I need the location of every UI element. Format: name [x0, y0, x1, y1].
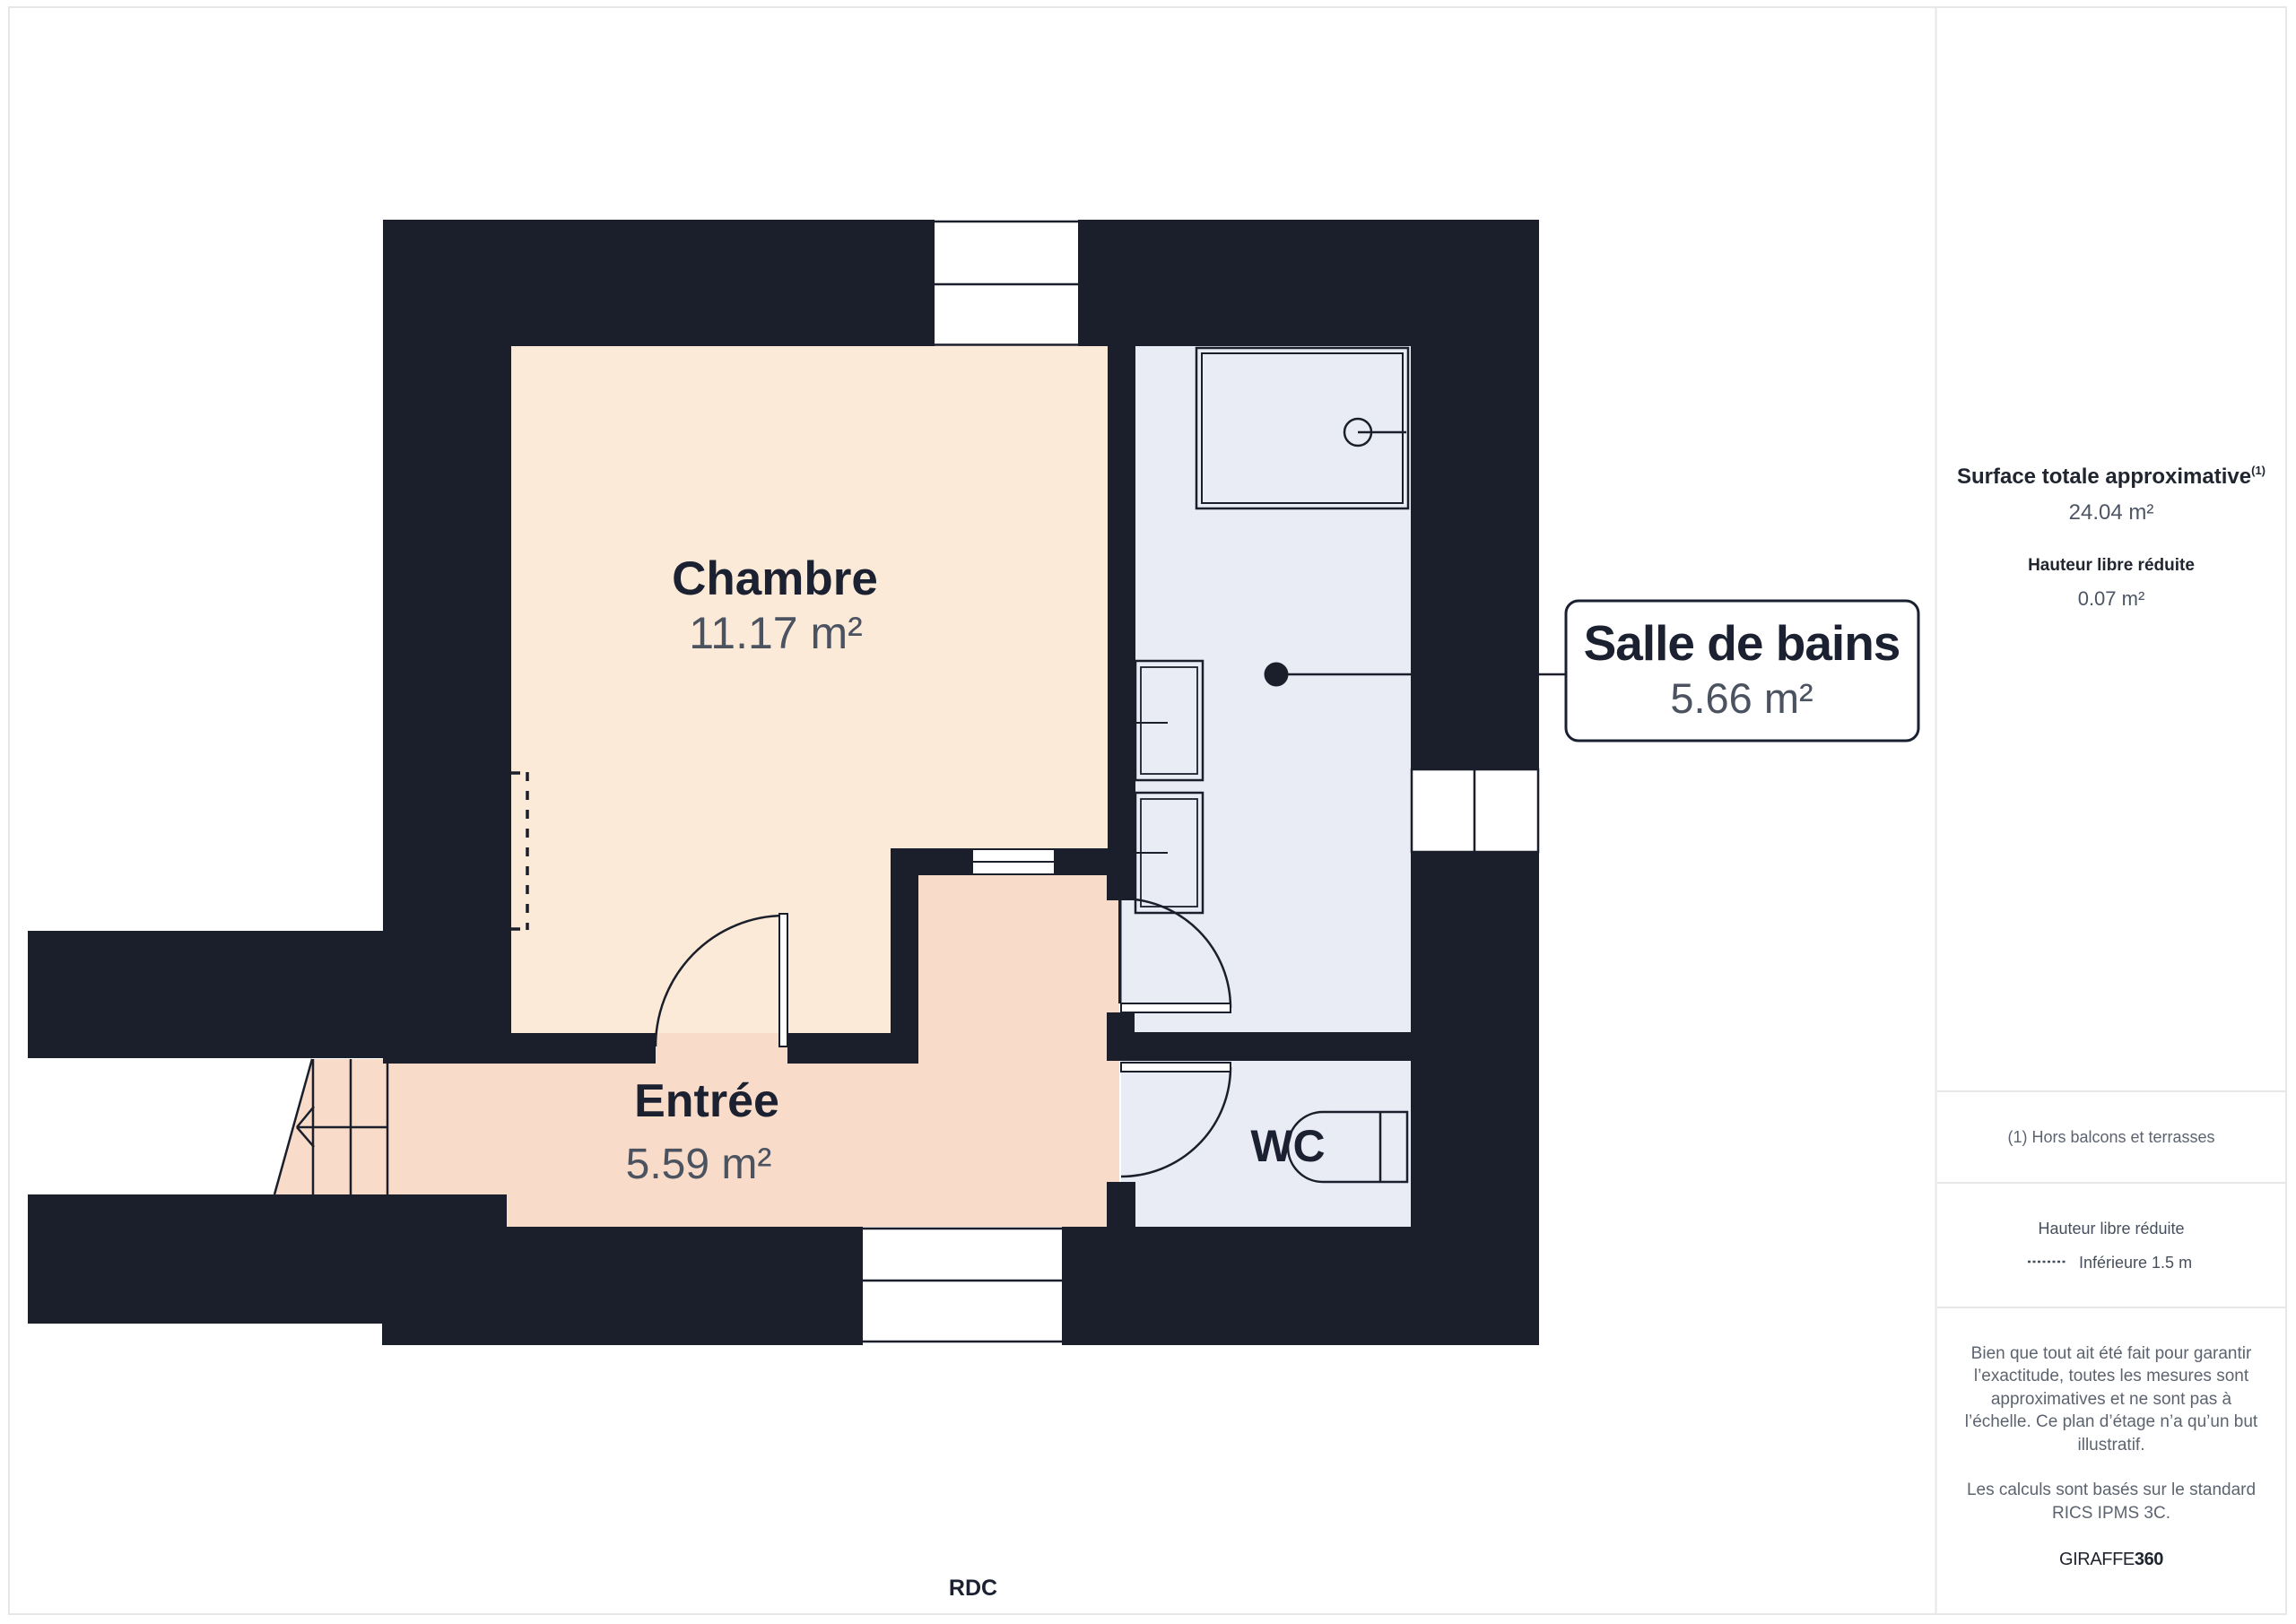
svg-text:Bien que tout ait été fait pou: Bien que tout ait été fait pour garantir — [1971, 1344, 2252, 1363]
svg-text:5.66 m²: 5.66 m² — [1670, 674, 1813, 722]
svg-text:Entrée: Entrée — [634, 1075, 779, 1127]
svg-text:RICS IPMS 3C.: RICS IPMS 3C. — [2052, 1504, 2170, 1523]
svg-text:Hauteur libre réduite: Hauteur libre réduite — [2028, 556, 2195, 575]
svg-text:(1) Hors balcons et terrasses: (1) Hors balcons et terrasses — [2007, 1128, 2214, 1146]
svg-text:11.17 m²: 11.17 m² — [689, 608, 863, 658]
svg-text:Salle de bains: Salle de bains — [1584, 615, 1900, 671]
svg-text:0.07 m²: 0.07 m² — [2078, 587, 2145, 610]
svg-text:GIRAFFE360: GIRAFFE360 — [2059, 1550, 2163, 1569]
svg-text:24.04 m²: 24.04 m² — [2069, 500, 2154, 525]
svg-text:5.59 m²: 5.59 m² — [626, 1141, 772, 1188]
svg-text:l’échelle. Ce plan d’étage n’a: l’échelle. Ce plan d’étage n’a qu’un but — [1965, 1412, 2258, 1431]
svg-text:approximatives et ne sont pas: approximatives et ne sont pas à — [1991, 1390, 2232, 1409]
svg-text:Les calculs sont basés sur le: Les calculs sont basés sur le standard — [1967, 1481, 2256, 1499]
svg-text:l’exactitude, toutes les mesur: l’exactitude, toutes les mesures sont — [1974, 1367, 2249, 1385]
svg-text:Hauteur libre réduite: Hauteur libre réduite — [2038, 1220, 2184, 1238]
svg-text:Surface totale approximative(1: Surface totale approximative(1) — [1957, 464, 2266, 489]
svg-text:Inférieure 1.5 m: Inférieure 1.5 m — [2079, 1254, 2192, 1272]
svg-text:RDC: RDC — [949, 1576, 997, 1601]
svg-text:illustratif.: illustratif. — [2078, 1436, 2145, 1455]
svg-text:Chambre: Chambre — [672, 552, 878, 605]
svg-text:WC: WC — [1250, 1121, 1325, 1171]
